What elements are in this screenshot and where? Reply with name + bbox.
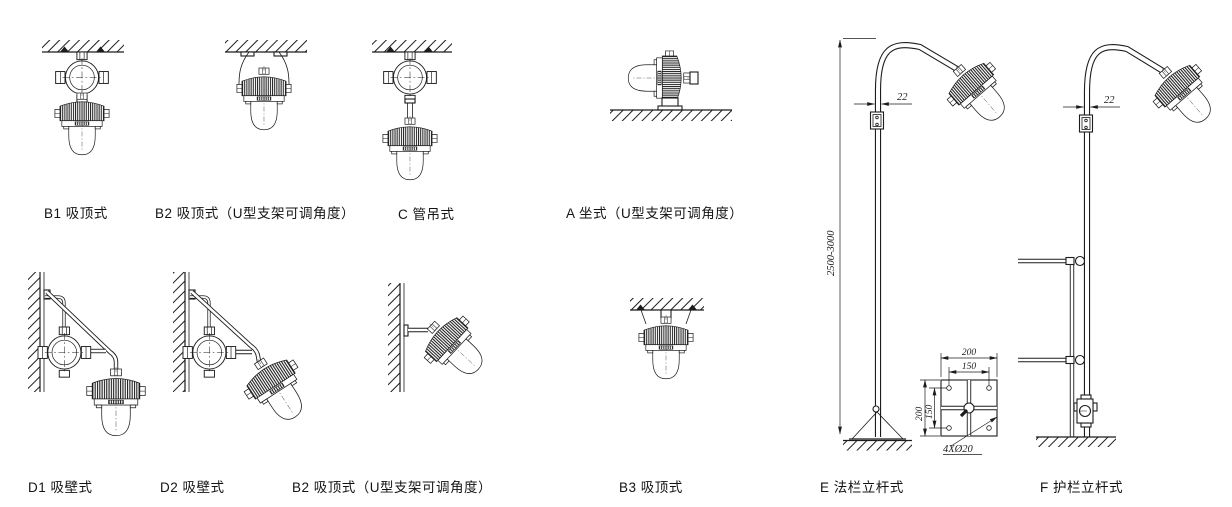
figure-f-guardrail-pole: 22: [1018, 47, 1227, 447]
pole-clamp: [1076, 257, 1085, 266]
figure-label-e: E 法栏立杆式: [820, 476, 904, 496]
svg-text:2500-3000: 2500-3000: [826, 230, 837, 276]
figure-b2-wall-bracket: [388, 283, 498, 392]
figure-d2-wall-mount: [173, 272, 320, 433]
ground-hatch: [610, 110, 732, 121]
lamp-fixture: [237, 66, 291, 130]
drawing-canvas: 22 2500-3000 200: [0, 0, 1232, 507]
figure-label-d1: D1 吸壁式: [28, 476, 93, 496]
figure-label-c: C 管吊式: [398, 203, 455, 223]
figure-label-f: F 护栏立杆式: [1040, 476, 1123, 496]
lamp-fixture: [383, 116, 437, 180]
junction-box: [38, 327, 91, 377]
ceiling-hatch: [42, 40, 124, 52]
figure-c-pipe-pendant: [372, 40, 452, 180]
svg-text:22: 22: [1104, 95, 1115, 106]
ground-hatch: [843, 441, 912, 451]
junction-box: [384, 52, 437, 102]
figure-label-a: A 坐式（U型支架可调角度）: [566, 202, 743, 222]
ceiling-hatch: [225, 40, 307, 52]
lamp-fixture: [628, 51, 692, 105]
ceiling-hatch: [372, 40, 452, 52]
lamp-fixture: [87, 367, 145, 436]
figure-label-b2-top: B2 吸顶式（U型支架可调角度）: [155, 202, 355, 222]
pole: [1087, 47, 1163, 437]
lamp-fixture: [410, 303, 497, 390]
lamp-fixture: [639, 315, 693, 379]
wall-hatch: [173, 272, 185, 392]
figure-label-d2: D2 吸壁式: [160, 476, 225, 496]
dim-plate-height: 200: [915, 407, 925, 422]
pole-clamp: [1076, 356, 1085, 365]
figure-b1-ceiling-mount: [42, 40, 124, 155]
dimension-pole-height: 2500-3000: [826, 39, 876, 435]
figure-d1-wall-mount: [28, 272, 145, 436]
brace: [686, 310, 691, 324]
lamp-fixture: [233, 343, 319, 432]
technical-drawing: 22 2500-3000 200: [0, 0, 1232, 507]
figure-label-b2-bottom: B2 吸顶式（U型支架可调角度）: [292, 476, 492, 496]
figure-b2-ceiling-u-bracket: [225, 40, 307, 130]
figure-b3-ceiling-mount: [630, 298, 704, 379]
svg-text:22: 22: [897, 92, 908, 103]
mount-stub: [690, 72, 698, 84]
dim-holes-callout: 4XØ20: [943, 444, 973, 455]
dim-hole-spacing-v: 150: [925, 405, 935, 420]
wall-hatch: [28, 272, 40, 392]
ground-hatch: [1036, 437, 1116, 447]
figure-label-b3: B3 吸顶式: [619, 476, 683, 496]
brace: [641, 310, 646, 324]
junction-box: [183, 327, 236, 377]
figure-a-pedestal-mount: [610, 51, 732, 121]
base-plate-detail: 200 150 200 150 4XØ20: [915, 348, 997, 455]
dim-plate-width: 200: [962, 348, 977, 358]
junction-box: [1074, 395, 1097, 427]
dimension-pole-width: 22: [854, 92, 912, 104]
dimension-pole-width: 22: [1063, 95, 1120, 107]
dim-hole-spacing-h: 150: [962, 362, 977, 372]
figure-label-b1: B1 吸顶式: [44, 202, 108, 222]
wall-hatch: [388, 283, 400, 392]
